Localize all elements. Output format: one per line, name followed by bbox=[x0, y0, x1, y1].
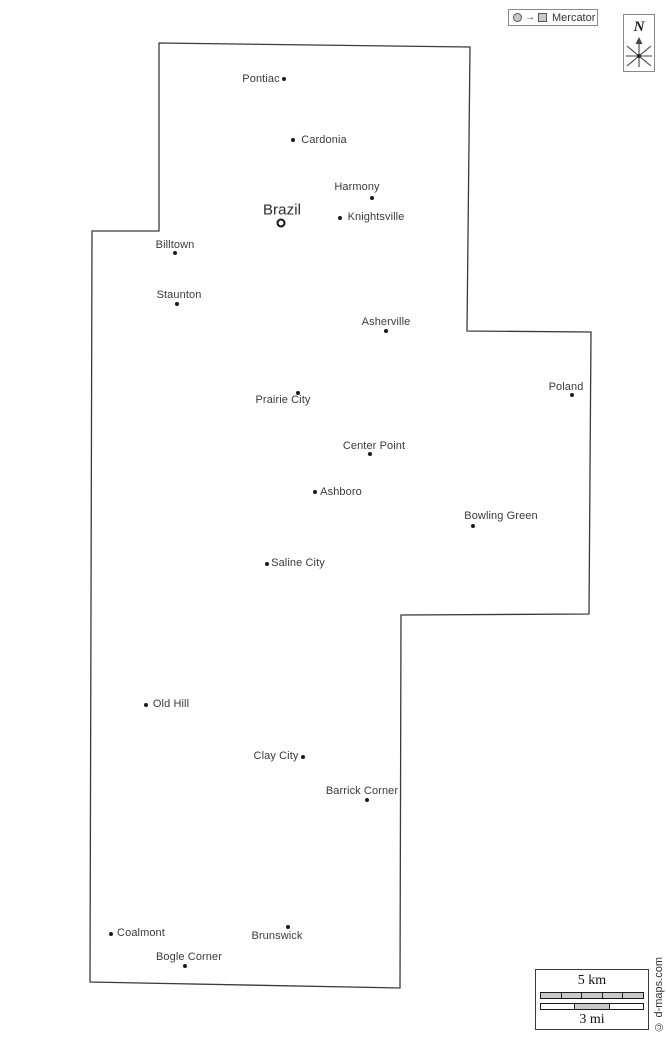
city-marker-ashboro bbox=[313, 490, 317, 494]
scale-bar-mi bbox=[540, 1003, 644, 1010]
city-label-center-point: Center Point bbox=[343, 440, 405, 452]
city-marker-barrick-corner bbox=[365, 798, 369, 802]
city-label-pontiac: Pontiac bbox=[242, 73, 279, 85]
scale-bar-box: 5 km 3 mi bbox=[535, 969, 649, 1030]
city-marker-harmony bbox=[370, 196, 374, 200]
mi-bar-segment bbox=[609, 1004, 643, 1009]
projection-badge: → Mercator bbox=[508, 9, 598, 26]
km-bar-segment bbox=[602, 993, 623, 998]
north-label: N bbox=[634, 20, 645, 35]
city-marker-center-point bbox=[368, 452, 372, 456]
city-label-saline-city: Saline City bbox=[271, 557, 325, 569]
county-seat-marker-brazil bbox=[277, 219, 286, 228]
mi-bar-segment bbox=[541, 1004, 574, 1009]
compass-star-icon bbox=[623, 35, 655, 71]
city-label-poland: Poland bbox=[549, 381, 584, 393]
city-label-prairie-city: Prairie City bbox=[256, 394, 311, 406]
city-label-knightsville: Knightsville bbox=[348, 211, 405, 223]
city-marker-billtown bbox=[173, 251, 177, 255]
km-bar-segment bbox=[541, 993, 561, 998]
scale-km-label: 5 km bbox=[578, 974, 606, 988]
dmaps-watermark: © d-maps.com bbox=[653, 957, 665, 1033]
city-marker-clay-city bbox=[301, 755, 305, 759]
km-bar-segment bbox=[581, 993, 602, 998]
city-label-bowling-green: Bowling Green bbox=[464, 510, 537, 522]
km-bar-segment bbox=[622, 993, 643, 998]
city-label-brunswick: Brunswick bbox=[251, 930, 302, 942]
globe-circle-icon bbox=[513, 13, 522, 22]
city-label-cardonia: Cardonia bbox=[301, 134, 346, 146]
city-label-asherville: Asherville bbox=[362, 316, 411, 328]
city-marker-staunton bbox=[175, 302, 179, 306]
km-bar-segment bbox=[561, 993, 582, 998]
city-label-clay-city: Clay City bbox=[254, 750, 299, 762]
scale-bar-km bbox=[540, 992, 644, 999]
city-marker-bowling-green bbox=[471, 524, 475, 528]
city-label-bogle-corner: Bogle Corner bbox=[156, 951, 222, 963]
city-marker-old-hill bbox=[144, 703, 148, 707]
city-label-barrick-corner: Barrick Corner bbox=[326, 785, 398, 797]
flat-square-icon bbox=[538, 13, 547, 22]
city-marker-pontiac bbox=[282, 77, 286, 81]
city-label-brazil: Brazil bbox=[263, 202, 301, 219]
mi-bar-segment bbox=[574, 1004, 608, 1009]
city-marker-saline-city bbox=[265, 562, 269, 566]
city-label-coalmont: Coalmont bbox=[117, 927, 165, 939]
scale-mi-label: 3 mi bbox=[579, 1013, 604, 1027]
city-label-ashboro: Ashboro bbox=[320, 486, 362, 498]
projection-name: Mercator bbox=[550, 12, 595, 24]
arrow-right-icon: → bbox=[525, 13, 535, 23]
city-marker-bogle-corner bbox=[183, 964, 187, 968]
city-marker-knightsville bbox=[338, 216, 342, 220]
cities-layer: PontiacCardoniaHarmonyBrazilKnightsville… bbox=[0, 0, 667, 1040]
city-marker-cardonia bbox=[291, 138, 295, 142]
city-marker-coalmont bbox=[109, 932, 113, 936]
compass-rose: N bbox=[623, 14, 655, 72]
map-page: PontiacCardoniaHarmonyBrazilKnightsville… bbox=[0, 0, 667, 1040]
city-label-staunton: Staunton bbox=[157, 289, 202, 301]
city-marker-poland bbox=[570, 393, 574, 397]
city-label-old-hill: Old Hill bbox=[153, 698, 189, 710]
city-marker-asherville bbox=[384, 329, 388, 333]
city-label-harmony: Harmony bbox=[334, 181, 379, 193]
city-marker-brunswick bbox=[286, 925, 290, 929]
city-label-billtown: Billtown bbox=[156, 239, 195, 251]
